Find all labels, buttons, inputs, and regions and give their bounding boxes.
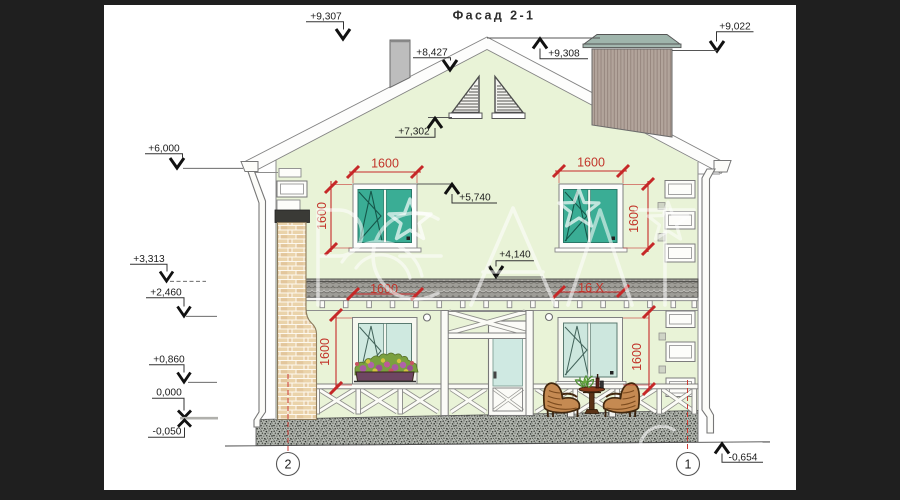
svg-text:+3,313: +3,313 [133, 254, 165, 265]
svg-text:+5,740: +5,740 [459, 193, 491, 204]
svg-text:16 Х: 16 Х [578, 281, 604, 295]
svg-text:1600: 1600 [577, 156, 605, 170]
svg-text:+8,427: +8,427 [416, 48, 448, 59]
svg-text:-0,050: -0,050 [153, 427, 182, 438]
svg-text:+9,307: +9,307 [310, 12, 342, 23]
svg-text:0,000: 0,000 [156, 388, 182, 399]
svg-text:1600: 1600 [630, 343, 644, 371]
svg-text:+7,302: +7,302 [398, 127, 430, 138]
svg-text:+9,022: +9,022 [719, 22, 751, 33]
svg-text:1600: 1600 [318, 338, 332, 366]
svg-text:+6,000: +6,000 [148, 144, 180, 155]
svg-text:+4,140: +4,140 [499, 250, 531, 261]
svg-text:+2,460: +2,460 [150, 288, 182, 299]
svg-text:1: 1 [685, 458, 692, 472]
svg-text:+9,308: +9,308 [548, 49, 580, 60]
svg-text:Фасад 2-1: Фасад 2-1 [453, 9, 536, 23]
svg-text:+0,860: +0,860 [153, 355, 185, 366]
svg-text:1600: 1600 [371, 157, 399, 171]
svg-text:2: 2 [285, 458, 292, 472]
